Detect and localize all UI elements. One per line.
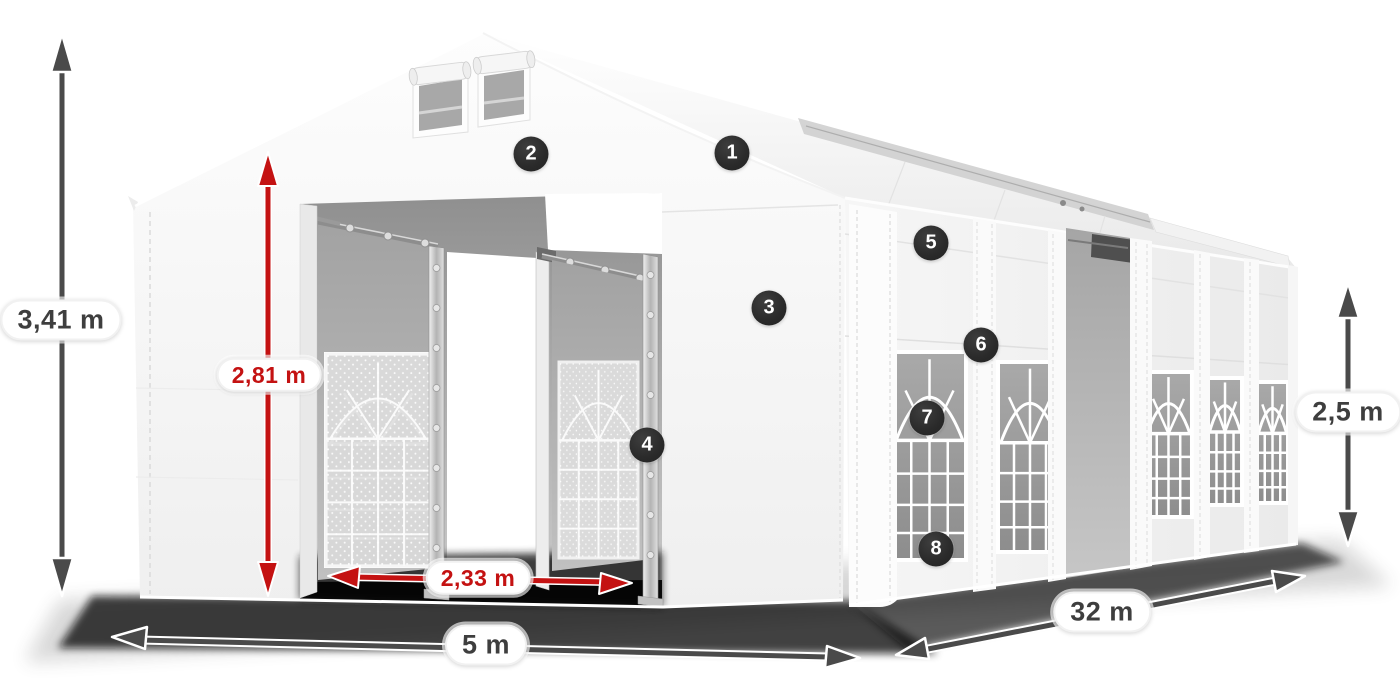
door-hinge-pole (536, 252, 549, 590)
dimension-label-entrance-height: 2,81 m (217, 358, 322, 392)
gable-vent-left (408, 61, 472, 138)
dimension-label-entrance-width: 2,33 m (426, 561, 531, 595)
front-opening-interior (300, 193, 663, 607)
dimension-label-total-height: 3,41 m (0, 299, 121, 340)
open-passage-gap (447, 252, 537, 586)
dimension-label-side-height: 2,5 m (1295, 391, 1400, 432)
part-marker-3[interactable]: 3 (752, 291, 787, 326)
tent-illustration (0, 0, 1400, 700)
dimension-label-side-length: 32 m (1053, 591, 1151, 632)
side-window-1 (893, 352, 966, 560)
part-marker-6[interactable]: 6 (964, 328, 999, 363)
left-door-panel (302, 215, 438, 580)
door-frame-post-left (300, 204, 317, 598)
part-marker-5[interactable]: 5 (914, 226, 949, 261)
side-wall (845, 198, 1298, 607)
part-marker-7[interactable]: 7 (910, 401, 945, 436)
part-marker-1[interactable]: 1 (715, 136, 750, 171)
side-window-3 (1145, 372, 1192, 517)
tent-diagram: 1 2 3 4 5 6 7 8 3,41 m 2,81 m 2,33 m 5 m… (0, 0, 1400, 700)
part-marker-8[interactable]: 8 (919, 532, 954, 567)
part-marker-4[interactable]: 4 (630, 428, 665, 463)
right-door-panel (552, 260, 644, 571)
side-wall-door-opening (1066, 228, 1134, 578)
dimension-label-front-width: 5 m (445, 624, 527, 665)
side-window-5 (1257, 382, 1288, 503)
part-marker-2[interactable]: 2 (514, 137, 549, 172)
side-window-4 (1208, 378, 1242, 505)
gable-vent-right (472, 50, 536, 127)
